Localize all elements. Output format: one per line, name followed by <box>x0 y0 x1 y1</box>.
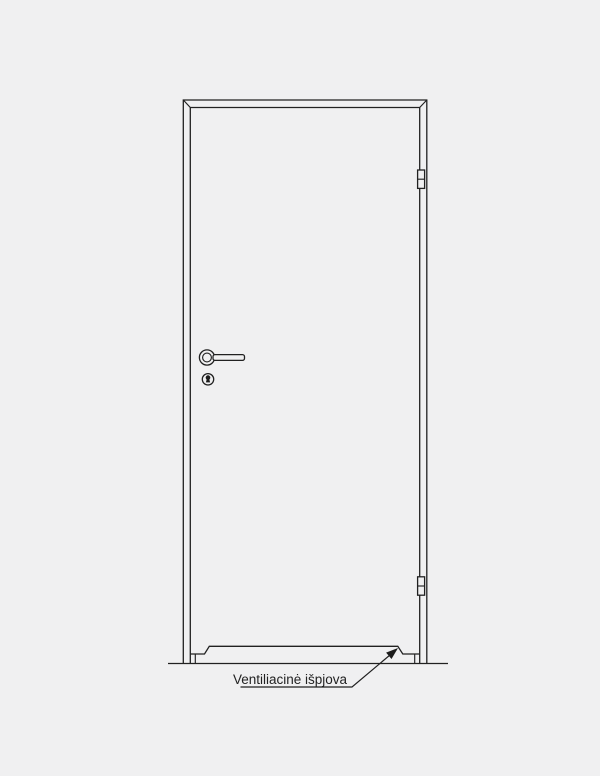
door-leaf-outline <box>190 108 419 664</box>
handle-rosette-outer <box>199 350 214 365</box>
door-technical-drawing: Ventiliacinė išpjova <box>0 0 600 776</box>
hinge-top <box>418 170 425 188</box>
hinge-bottom <box>418 577 425 595</box>
handle-rosette-inner <box>203 353 212 362</box>
ventilation-label: Ventiliacinė išpjova <box>233 672 348 687</box>
door-handle <box>199 350 244 365</box>
miter-joint-top-right <box>420 100 427 108</box>
miter-joint-top-left <box>183 100 190 108</box>
keyhole-escutcheon <box>202 374 213 385</box>
ventilation-cutout-edge <box>190 646 419 654</box>
door-diagram-page: Ventiliacinė išpjova <box>0 0 600 776</box>
door-frame-outer <box>183 100 426 664</box>
handle-lever <box>213 355 245 361</box>
